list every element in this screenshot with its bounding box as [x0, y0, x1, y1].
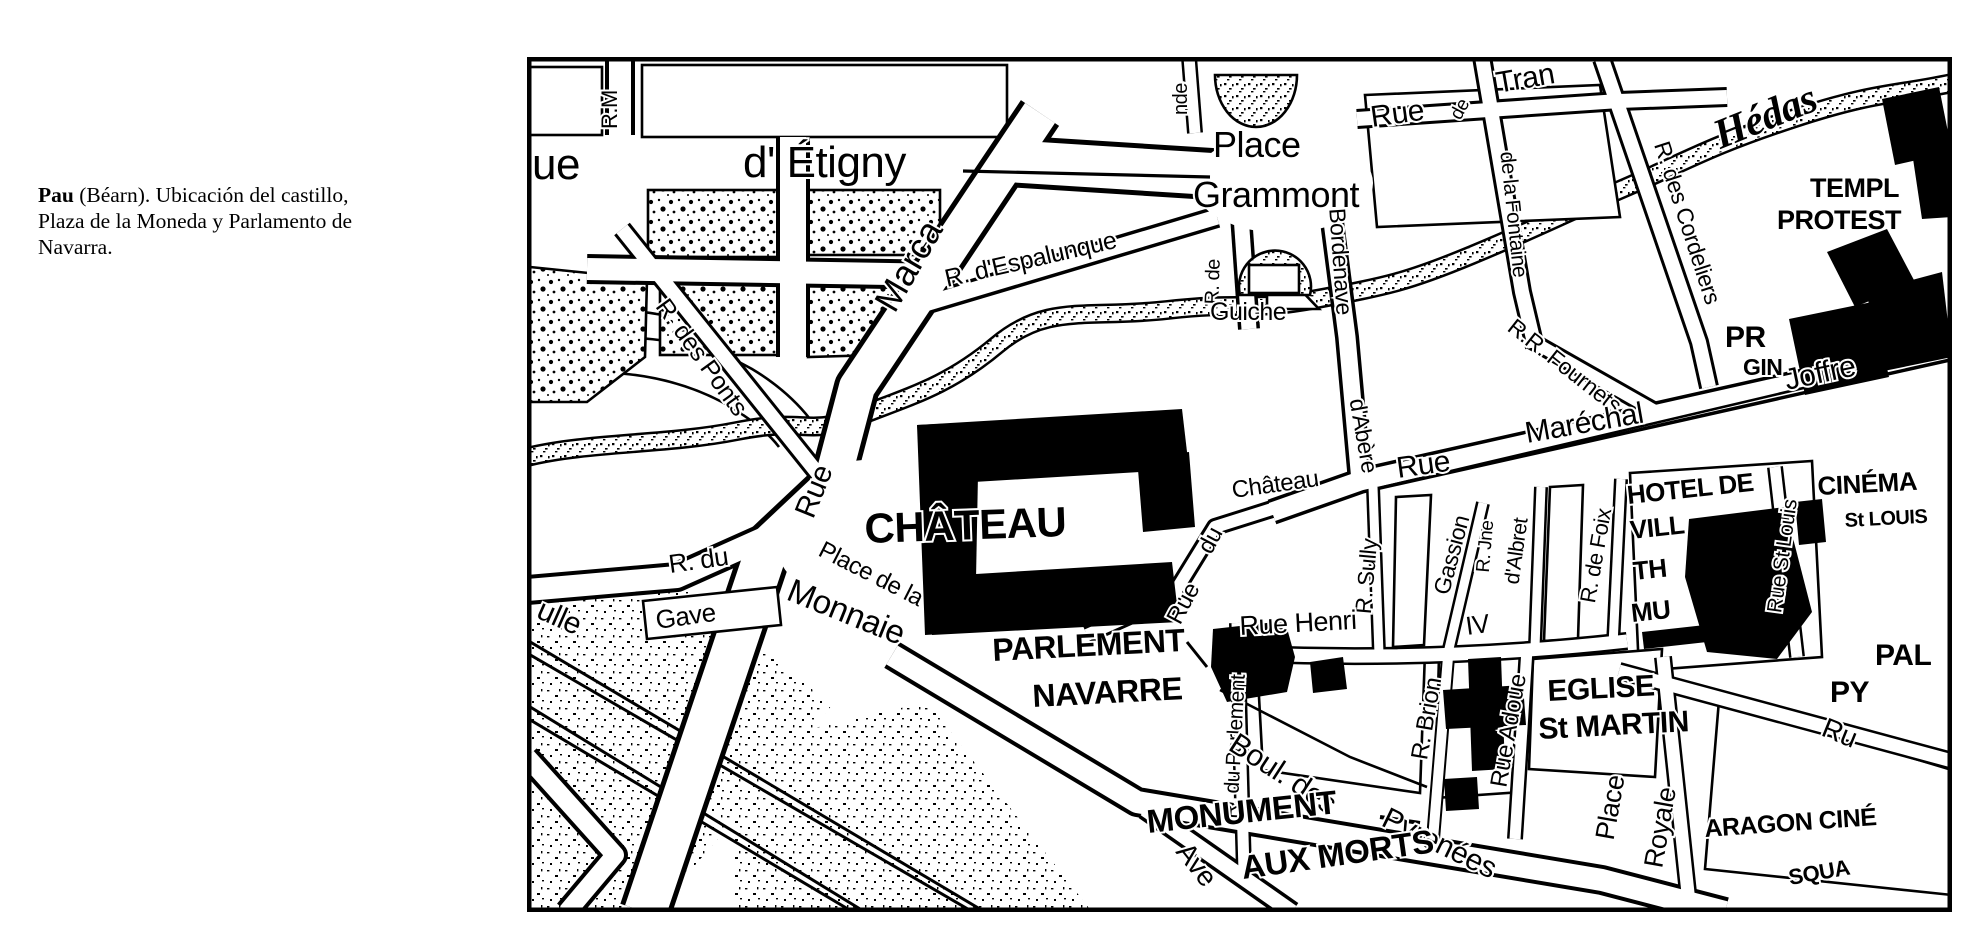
map-label: Guiche	[1210, 298, 1286, 326]
map-label: GIN	[1743, 354, 1782, 380]
caption-place-name: Pau	[38, 183, 74, 207]
block-sully	[1393, 495, 1431, 647]
map-label: d' Étigny	[743, 138, 906, 187]
caption: Pau (Béarn). Ubicación del castillo, Pla…	[38, 182, 360, 260]
map-label: PR	[1725, 321, 1767, 354]
map-label: ue	[532, 140, 580, 189]
map-label: EGLISE	[1547, 669, 1656, 708]
map-label: Place	[1213, 124, 1301, 165]
map-label: PROTEST	[1777, 205, 1902, 235]
block-etigny-north	[642, 65, 1007, 137]
caption-text: (Béarn). Ubicación del castillo, Plaza d…	[38, 183, 352, 259]
map-canvas: ued' ÉtignyR.MndePlaceGrammontR. d'Espal…	[527, 57, 1952, 912]
city-map-pau: ued' ÉtignyR.MndePlaceGrammontR. d'Espal…	[527, 57, 1952, 912]
map-label: Rue Henri	[1239, 605, 1357, 641]
map-label: R.M	[597, 90, 622, 129]
map-label: nde	[1170, 83, 1192, 115]
parlement-annex-building	[1310, 657, 1347, 693]
block-top-left	[527, 67, 602, 135]
map-label: VILL	[1628, 509, 1686, 545]
map-label: TEMPL	[1810, 173, 1899, 203]
block-albret-foix	[1544, 485, 1583, 641]
map-label: CINÉMA	[1817, 466, 1919, 501]
map-label: CHÂTEAU	[864, 497, 1067, 552]
map-label: PY	[1830, 676, 1870, 709]
map-label: MU	[1629, 594, 1671, 628]
map-label: TH	[1631, 553, 1668, 586]
map-label: St LOUIS	[1844, 506, 1928, 532]
map-label: PAL	[1875, 639, 1931, 672]
